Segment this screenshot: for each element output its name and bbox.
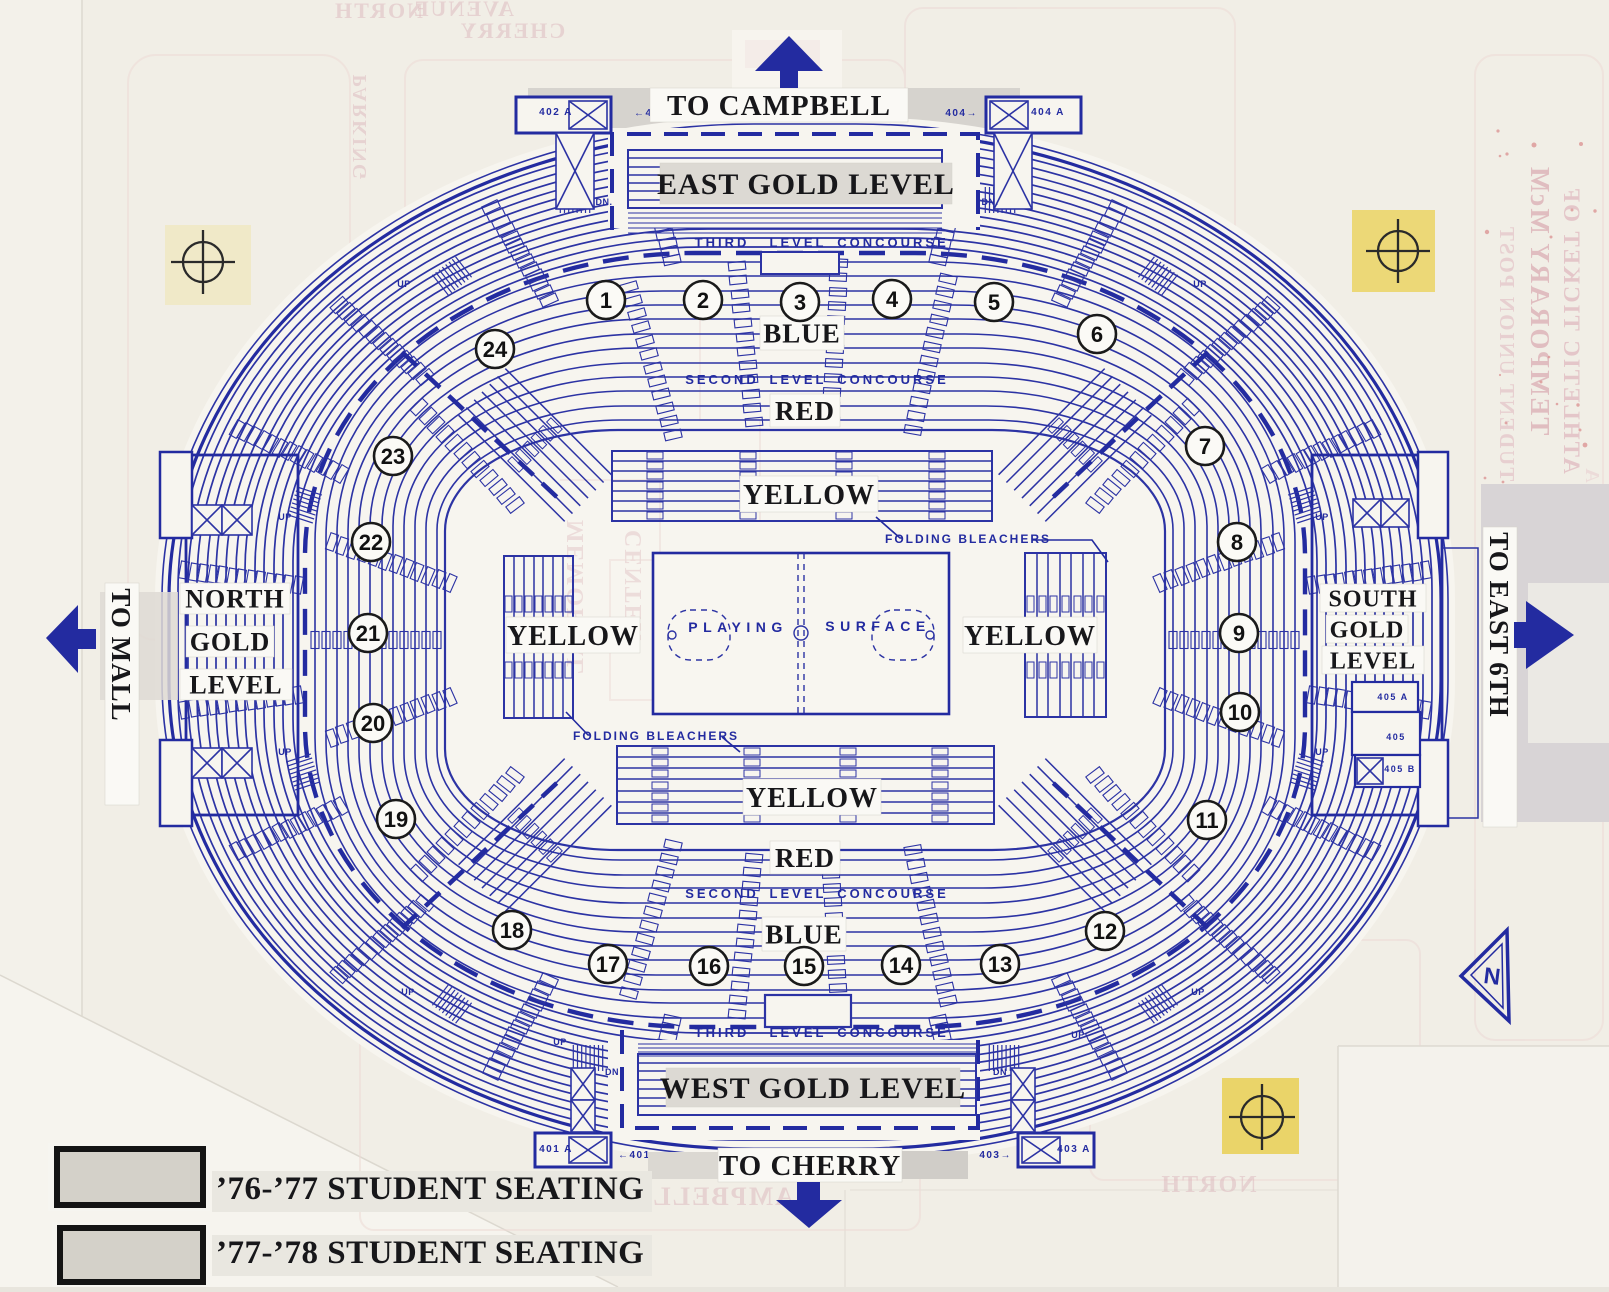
svg-text:CONCOURSE: CONCOURSE bbox=[837, 235, 949, 250]
svg-text:17: 17 bbox=[596, 952, 620, 977]
svg-text:TEMPORARY McM: TEMPORARY McM bbox=[1525, 165, 1555, 436]
svg-text:DN: DN bbox=[605, 1067, 619, 1077]
svg-text:EAST GOLD LEVEL: EAST GOLD LEVEL bbox=[657, 168, 955, 201]
svg-text:18: 18 bbox=[500, 918, 524, 943]
svg-text:405 A: 405 A bbox=[1377, 692, 1408, 702]
svg-text:1: 1 bbox=[600, 288, 612, 313]
svg-text:11: 11 bbox=[1195, 808, 1218, 833]
svg-text:GOLD: GOLD bbox=[1330, 617, 1405, 643]
svg-text:DN: DN bbox=[993, 1067, 1007, 1077]
svg-text:13: 13 bbox=[988, 952, 1012, 977]
svg-text:21: 21 bbox=[356, 621, 380, 646]
svg-text:CONCOURSE: CONCOURSE bbox=[837, 886, 949, 901]
svg-text:LEVEL: LEVEL bbox=[1330, 648, 1416, 674]
svg-text:UP: UP bbox=[1191, 987, 1205, 997]
svg-text:N: N bbox=[1482, 962, 1502, 990]
svg-text:4: 4 bbox=[886, 287, 899, 312]
svg-text:402 A: 402 A bbox=[539, 107, 573, 118]
svg-text:LEVEL: LEVEL bbox=[189, 671, 282, 700]
svg-text:TO CHERRY: TO CHERRY bbox=[719, 1150, 901, 1182]
svg-text:NORTH: NORTH bbox=[185, 585, 284, 614]
svg-text:CHERRY: CHERRY bbox=[459, 18, 566, 43]
svg-text:CONCOURSE: CONCOURSE bbox=[837, 1025, 949, 1040]
svg-text:404→: 404→ bbox=[945, 108, 978, 119]
svg-text:8: 8 bbox=[1231, 530, 1243, 555]
svg-text:15: 15 bbox=[792, 954, 816, 979]
svg-text:UP: UP bbox=[1193, 279, 1207, 289]
svg-text:BLUE: BLUE bbox=[765, 919, 843, 949]
svg-text:RED: RED bbox=[775, 843, 835, 873]
svg-text:22: 22 bbox=[359, 530, 383, 555]
svg-text:’77-’78 STUDENT SEATING: ’77-’78 STUDENT SEATING bbox=[216, 1235, 644, 1271]
svg-text:19: 19 bbox=[384, 807, 408, 832]
svg-text:23: 23 bbox=[381, 444, 405, 469]
svg-text:TO MALL: TO MALL bbox=[106, 588, 136, 721]
svg-text:YELLOW: YELLOW bbox=[743, 480, 875, 511]
svg-text:UP: UP bbox=[397, 279, 411, 289]
svg-text:SOUTH: SOUTH bbox=[1328, 586, 1417, 612]
svg-text:NORTH: NORTH bbox=[333, 0, 423, 23]
svg-text:UP: UP bbox=[553, 1037, 567, 1047]
svg-text:2: 2 bbox=[697, 288, 709, 313]
svg-text:UP: UP bbox=[278, 747, 292, 757]
svg-text:6: 6 bbox=[1091, 322, 1103, 347]
svg-text:YELLOW: YELLOW bbox=[507, 621, 639, 652]
svg-text:YELLOW: YELLOW bbox=[746, 783, 878, 814]
svg-text:LEVEL: LEVEL bbox=[770, 1025, 827, 1040]
svg-text:’76-’77 STUDENT SEATING: ’76-’77 STUDENT SEATING bbox=[216, 1171, 644, 1207]
svg-text:SURFACE: SURFACE bbox=[825, 618, 930, 634]
svg-text:BLUE: BLUE bbox=[763, 318, 841, 348]
svg-text:NORTH: NORTH bbox=[1159, 1172, 1256, 1198]
svg-text:THIRD: THIRD bbox=[695, 235, 750, 250]
svg-text:7: 7 bbox=[1199, 434, 1211, 459]
svg-text:12: 12 bbox=[1093, 919, 1117, 944]
svg-text:GOLD: GOLD bbox=[190, 628, 271, 657]
svg-text:401 A: 401 A bbox=[539, 1144, 573, 1155]
svg-text:LEVEL: LEVEL bbox=[770, 372, 827, 387]
svg-text:UP: UP bbox=[1071, 1030, 1085, 1040]
svg-text:5: 5 bbox=[988, 290, 1000, 315]
svg-text:UP: UP bbox=[1315, 512, 1329, 522]
svg-text:WEST GOLD LEVEL: WEST GOLD LEVEL bbox=[660, 1072, 966, 1105]
svg-text:TO CAMPBELL: TO CAMPBELL bbox=[667, 90, 891, 122]
svg-text:UP: UP bbox=[401, 987, 415, 997]
svg-text:24: 24 bbox=[483, 337, 508, 362]
svg-text:FOLDING BLEACHERS: FOLDING BLEACHERS bbox=[573, 729, 739, 743]
svg-text:UP: UP bbox=[1315, 747, 1329, 757]
svg-text:RED: RED bbox=[775, 396, 835, 426]
svg-text:←401: ←401 bbox=[618, 1150, 651, 1161]
svg-text:405 B: 405 B bbox=[1384, 764, 1416, 774]
svg-text:405: 405 bbox=[1386, 732, 1406, 742]
svg-text:YELLOW: YELLOW bbox=[964, 621, 1096, 652]
svg-text:16: 16 bbox=[697, 954, 721, 979]
svg-text:STUDENT UNION POST: STUDENT UNION POST bbox=[1495, 225, 1519, 495]
svg-text:PLAYING: PLAYING bbox=[688, 619, 787, 635]
svg-text:403 A: 403 A bbox=[1057, 1144, 1091, 1155]
svg-text:9: 9 bbox=[1233, 621, 1245, 646]
svg-text:UP: UP bbox=[278, 512, 292, 522]
svg-text:CONCOURSE: CONCOURSE bbox=[837, 372, 949, 387]
svg-text:14: 14 bbox=[889, 953, 914, 978]
svg-text:10: 10 bbox=[1228, 700, 1252, 725]
svg-text:TO EAST 6TH: TO EAST 6TH bbox=[1484, 532, 1514, 718]
svg-text:SECOND: SECOND bbox=[685, 886, 759, 901]
svg-text:PARKING: PARKING bbox=[349, 75, 371, 182]
svg-text:3: 3 bbox=[794, 290, 806, 315]
svg-text:404 A: 404 A bbox=[1031, 107, 1065, 118]
svg-text:SECOND: SECOND bbox=[685, 372, 759, 387]
svg-text:THIRD: THIRD bbox=[695, 1025, 750, 1040]
svg-text:DN.: DN. bbox=[596, 197, 613, 207]
svg-text:403→: 403→ bbox=[979, 1150, 1012, 1161]
svg-text:FOLDING BLEACHERS: FOLDING BLEACHERS bbox=[885, 532, 1051, 546]
svg-text:LEVEL: LEVEL bbox=[770, 886, 827, 901]
svg-text:20: 20 bbox=[361, 711, 385, 736]
svg-text:DN.: DN. bbox=[982, 197, 999, 207]
svg-text:LEVEL: LEVEL bbox=[770, 235, 827, 250]
